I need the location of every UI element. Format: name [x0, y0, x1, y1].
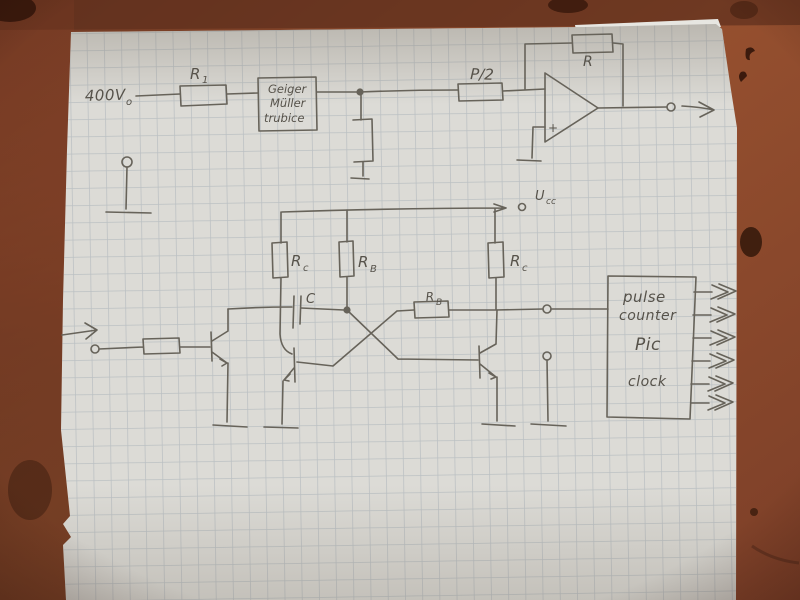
photo-vignette: [0, 0, 800, 600]
schematic-photo-canvas: 400V o R 1 Geiger Müller trubice P/2 R +…: [0, 0, 800, 600]
photo-hand-drawn-schematic: 400V o R 1 Geiger Müller trubice P/2 R +…: [0, 0, 800, 600]
